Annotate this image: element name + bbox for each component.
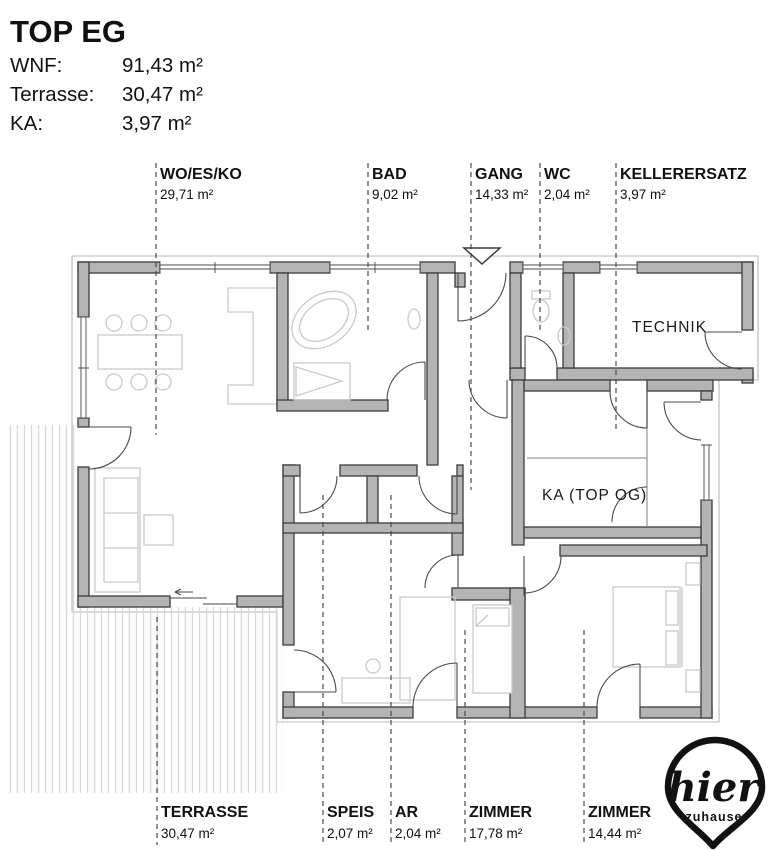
- bathroom-sink: [408, 309, 420, 329]
- ar-door: [419, 476, 457, 514]
- label-wc-area: 2,04 m²: [544, 187, 590, 202]
- header-row-label-2: KA:: [10, 112, 43, 135]
- label-zimmer1: ZIMMER: [469, 804, 533, 821]
- technik-door: [705, 332, 742, 369]
- toilet: [532, 291, 550, 322]
- label-ar-area: 2,04 m²: [395, 826, 441, 841]
- label-terrasse-area: 30,47 m²: [161, 826, 215, 841]
- bathtub: [281, 279, 367, 360]
- label-kellerersatz-area: 3,97 m²: [620, 187, 666, 202]
- speis-door: [300, 476, 337, 513]
- room-labels-top: WO/ES/KO 29,71 m² BAD 9,02 m² GANG 14,33…: [160, 166, 747, 202]
- label-terrasse: TERRASSE: [161, 804, 248, 821]
- kitchen-counter: [228, 288, 276, 404]
- label-gang: GANG: [475, 166, 523, 183]
- terrace-door: [89, 427, 131, 469]
- label-zimmer2: ZIMMER: [588, 804, 652, 821]
- header-row-value-2: 3,97 m²: [122, 112, 192, 135]
- zimmer1-door: [425, 555, 458, 588]
- page-title: TOP EG: [10, 14, 126, 49]
- logo: hier zuhause: [668, 740, 762, 846]
- label-kellerersatz: KELLERERSATZ: [620, 166, 747, 183]
- label-woesko: WO/ES/KO: [160, 166, 242, 183]
- sofa: [95, 468, 140, 592]
- bad-door: [387, 362, 425, 400]
- room-label-technik: TECHNIK: [632, 319, 707, 336]
- room-label-ka-top-og: KA (TOP OG): [542, 487, 647, 504]
- dining-table: [98, 335, 182, 369]
- windows: [78, 262, 712, 500]
- zimmer1-terrace-door: [294, 650, 336, 692]
- wardrobe: [400, 597, 455, 700]
- zimmer2-garden-door: [597, 664, 640, 707]
- coffee-table: [144, 515, 173, 545]
- logo-text-zuhause: zuhause: [685, 810, 742, 824]
- label-zimmer2-area: 14,44 m²: [588, 826, 642, 841]
- label-zimmer1-area: 17,78 m²: [469, 826, 523, 841]
- header: TOP EG WNF: 91,43 m² Terrasse: 30,47 m² …: [10, 14, 203, 135]
- gang-door: [469, 380, 507, 418]
- single-bed: [473, 605, 512, 693]
- double-bed: [613, 563, 700, 692]
- wc-door: [525, 336, 557, 368]
- floorplan-canvas: TOP EG WNF: 91,43 m² Terrasse: 30,47 m² …: [0, 0, 771, 850]
- sliding-door: [170, 589, 237, 604]
- header-row-label-0: WNF:: [10, 54, 62, 77]
- terrace-decking: [8, 425, 283, 793]
- label-bad: BAD: [372, 166, 407, 183]
- label-speis: SPEIS: [327, 804, 374, 821]
- label-gang-area: 14,33 m²: [475, 187, 529, 202]
- header-row-value-0: 91,43 m²: [122, 54, 203, 77]
- logo-text-hier: hier: [668, 764, 762, 811]
- header-row-value-1: 30,47 m²: [122, 83, 203, 106]
- label-speis-area: 2,07 m²: [327, 826, 373, 841]
- room-labels-bottom: TERRASSE 30,47 m² SPEIS 2,07 m² AR 2,04 …: [161, 804, 652, 841]
- zimmer2-door: [524, 556, 561, 596]
- label-ar: AR: [395, 804, 419, 821]
- label-woesko-area: 29,71 m²: [160, 187, 214, 202]
- label-wc: WC: [544, 166, 571, 183]
- ka-ext-door: [664, 402, 701, 440]
- ka-shelving: [527, 391, 647, 527]
- header-row-label-1: Terrasse:: [10, 83, 94, 106]
- shower: [294, 363, 350, 400]
- label-bad-area: 9,02 m²: [372, 187, 418, 202]
